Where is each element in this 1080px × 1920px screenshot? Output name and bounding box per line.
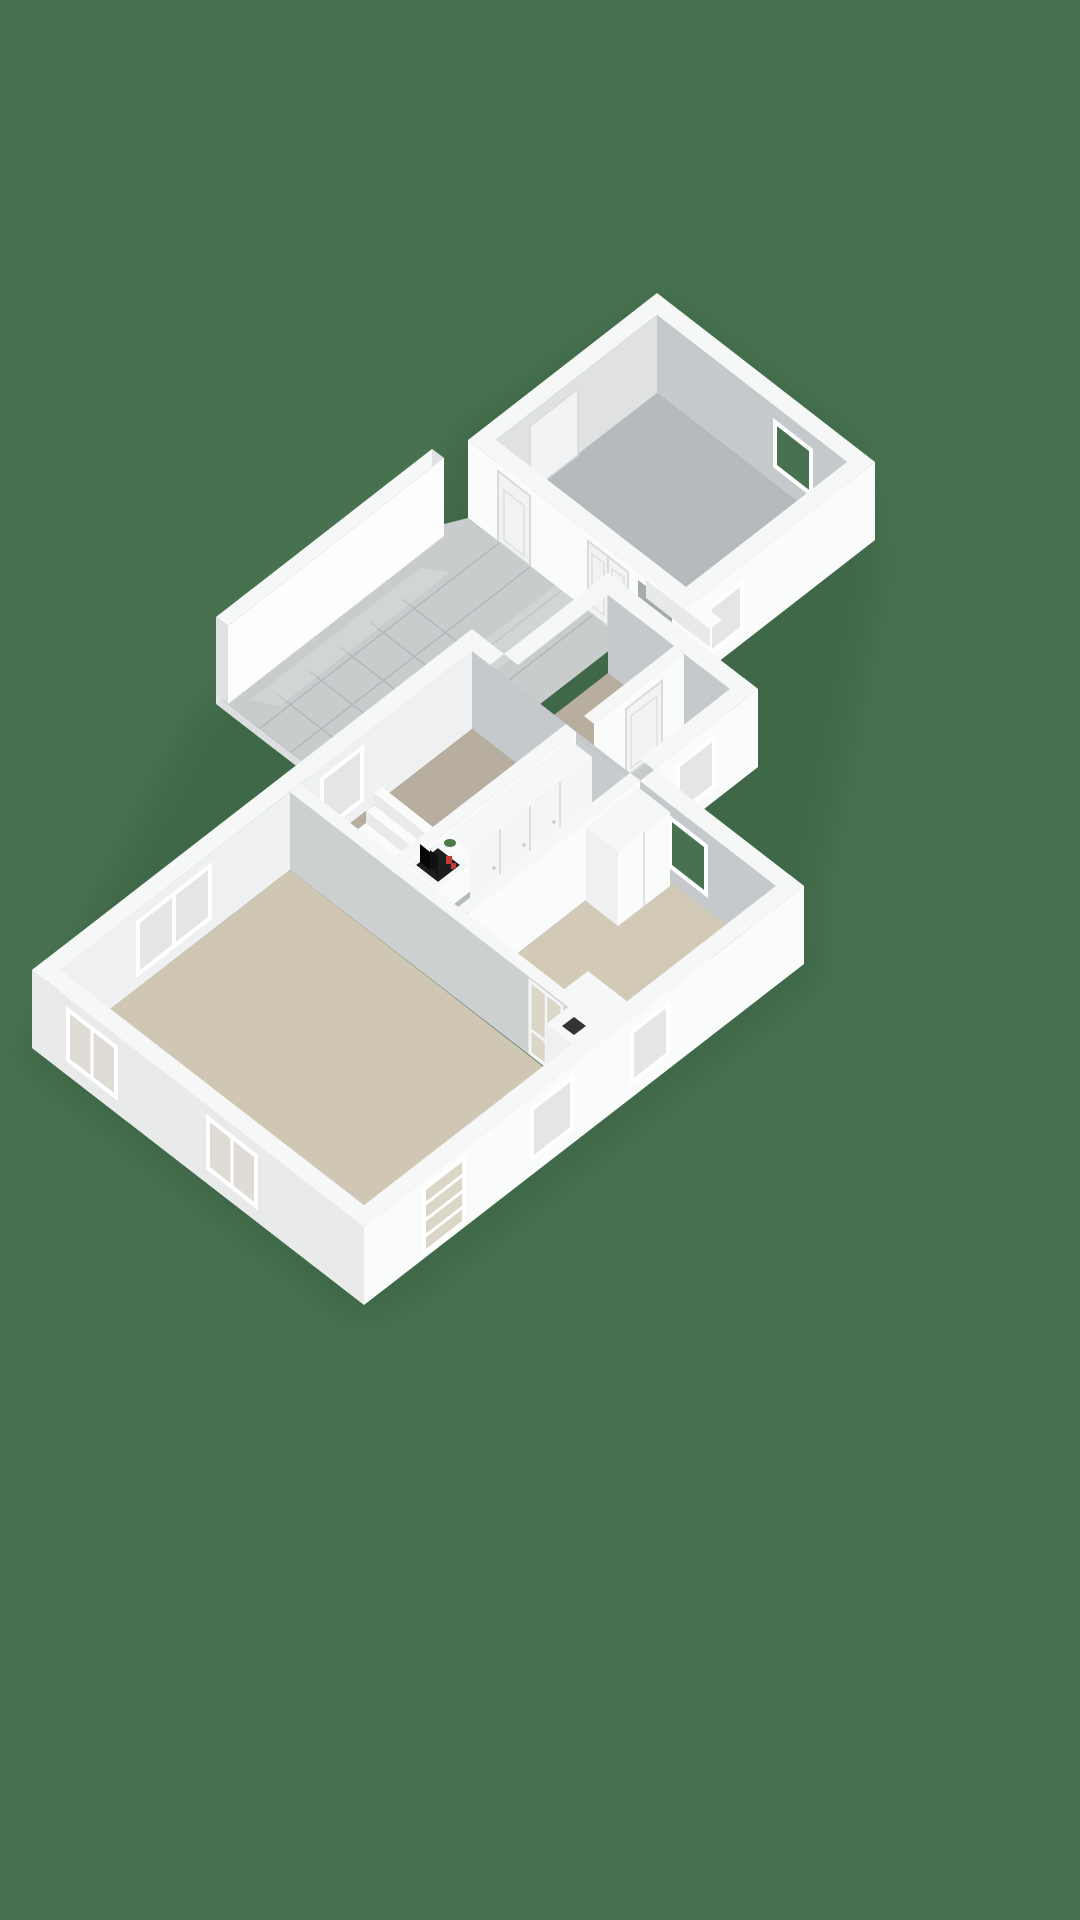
plant	[444, 839, 456, 847]
boiler-valve-red-2	[451, 863, 456, 869]
floorplan-stage	[0, 0, 1080, 1920]
privacy-wall-end-sw	[216, 617, 228, 704]
boiler-valve-red	[446, 856, 452, 864]
floorplan-3d-render	[0, 0, 1080, 1920]
